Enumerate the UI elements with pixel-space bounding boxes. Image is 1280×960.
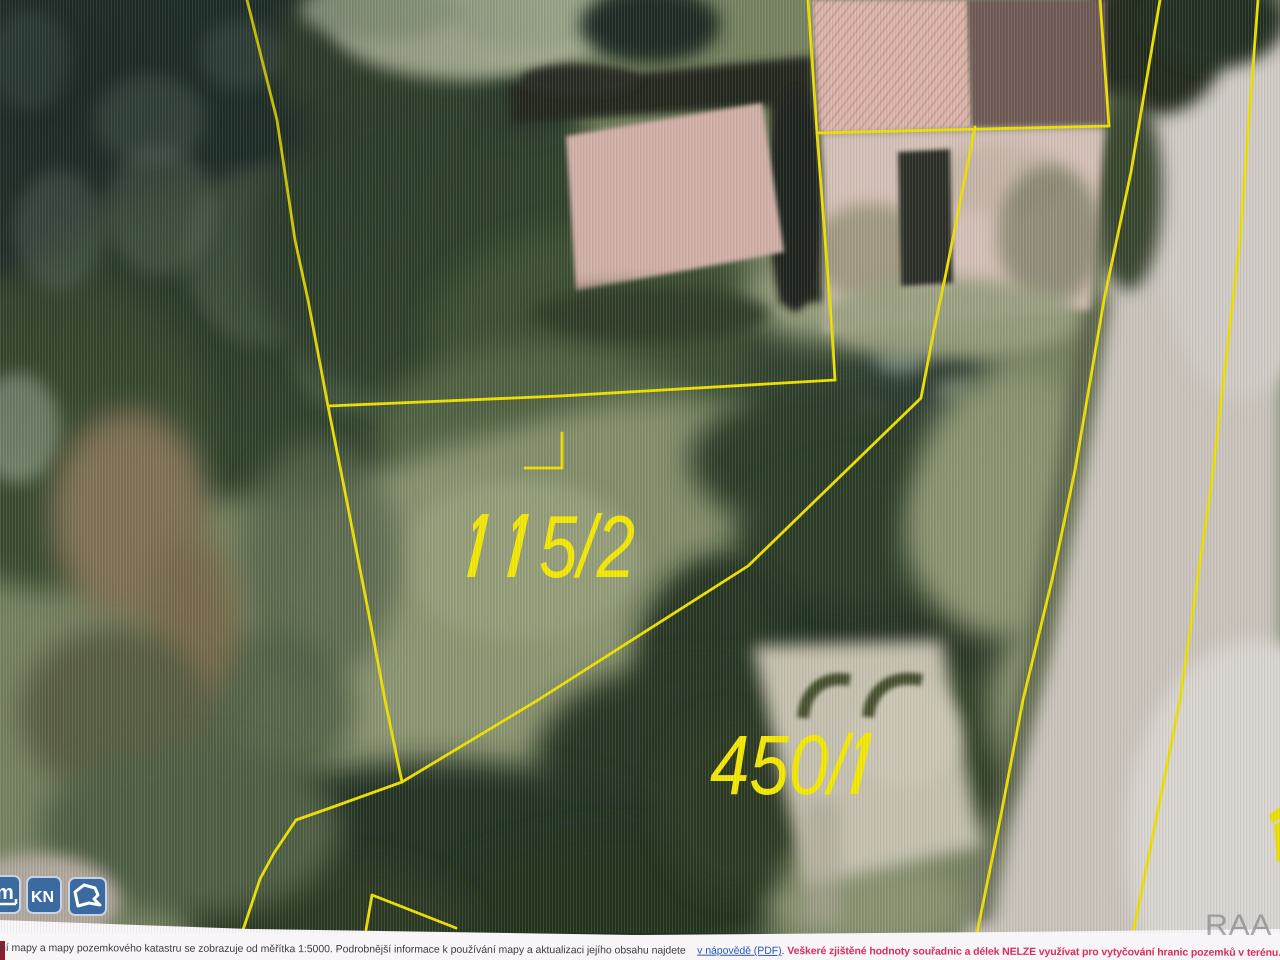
svg-text:450/: 450/ [710,718,854,812]
svg-text:KN: KN [31,889,54,906]
svg-text:5/2: 5/2 [539,497,635,596]
svg-text:m: m [0,882,14,904]
